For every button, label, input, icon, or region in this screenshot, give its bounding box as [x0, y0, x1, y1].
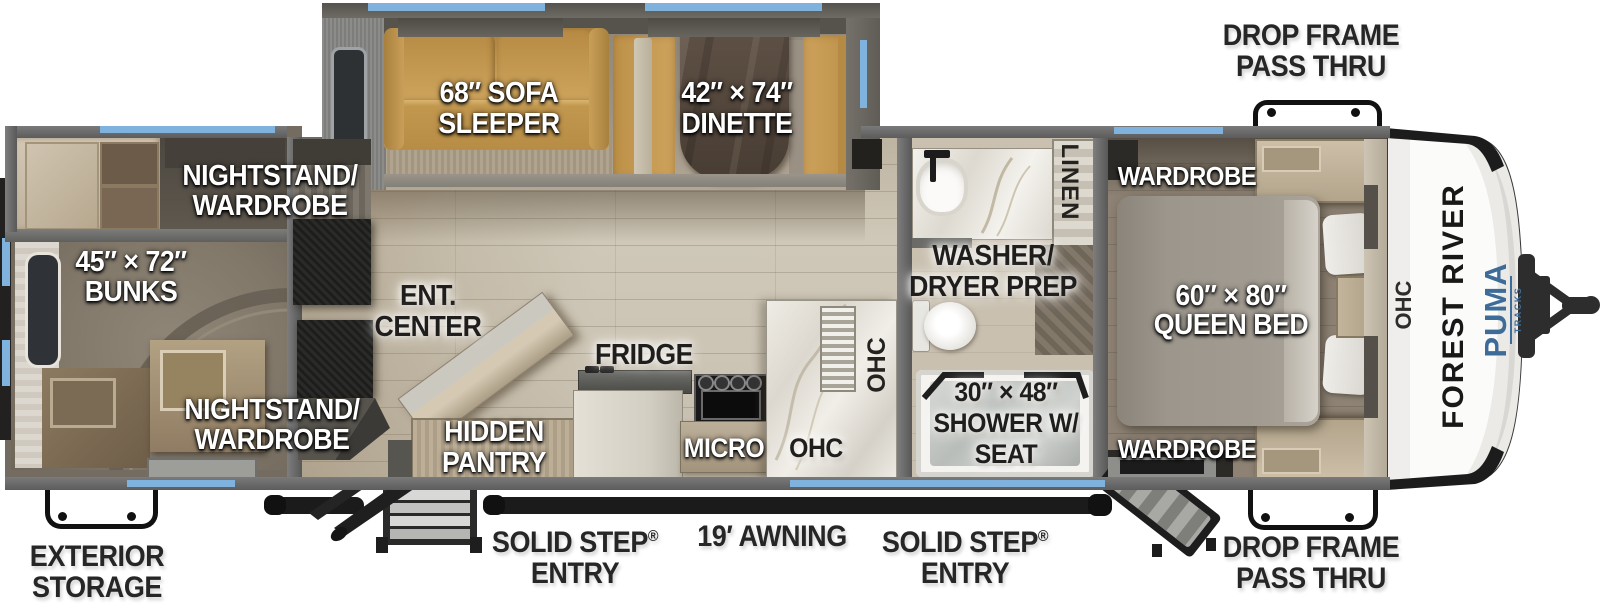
svg-text:PUMA: PUMA: [1480, 262, 1513, 357]
svg-text:TRACKS: TRACKS: [1513, 287, 1523, 334]
